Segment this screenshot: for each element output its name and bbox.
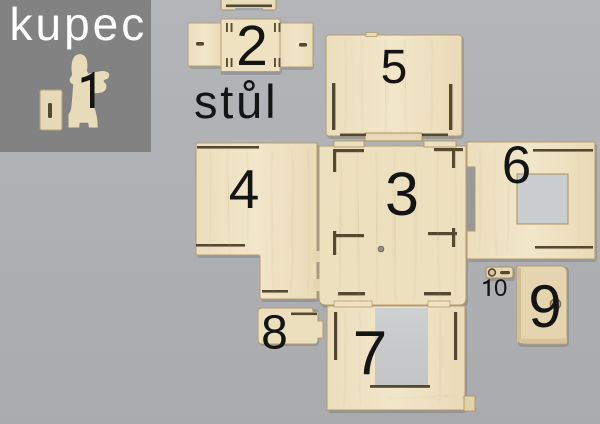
svg-text:4: 4 [229, 158, 260, 220]
svg-text:3: 3 [385, 160, 419, 228]
svg-text:9: 9 [528, 273, 561, 340]
svg-text:0: 0 [494, 275, 507, 302]
svg-text:stůl: stůl [194, 75, 278, 128]
svg-text:5: 5 [381, 41, 408, 94]
svg-text:8: 8 [261, 307, 288, 360]
svg-text:kupec: kupec [10, 0, 148, 50]
svg-text:6: 6 [502, 136, 531, 195]
svg-text:7: 7 [353, 319, 387, 388]
svg-text:2: 2 [236, 14, 268, 78]
